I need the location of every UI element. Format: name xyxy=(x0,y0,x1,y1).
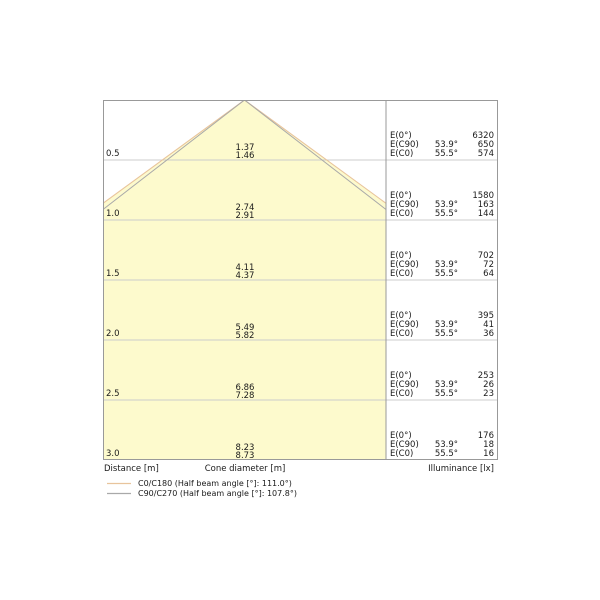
cone-diameter-c0-value: 2.91 xyxy=(195,213,295,221)
cone-diameter-c0-value: 8.73 xyxy=(195,453,295,461)
illuminance-row-ec0: E(C0)55.5°64 xyxy=(390,270,494,279)
cone-diameter-c0-value: 5.82 xyxy=(195,333,295,341)
ec0-angle: 55.5° xyxy=(434,270,458,279)
ec0-value: 64 xyxy=(458,270,494,279)
cone-diameter-values: 4.11 4.37 xyxy=(195,265,295,280)
ec0-value: 36 xyxy=(458,330,494,339)
cone-diameter-values: 2.74 2.91 xyxy=(195,205,295,220)
illuminance-block: E(0°)176 E(C90)53.9°18 E(C0)55.5°16 xyxy=(390,432,494,459)
ec0-value: 23 xyxy=(458,390,494,399)
ec0-label: E(C0) xyxy=(390,330,434,339)
ec0-angle: 55.5° xyxy=(434,210,458,219)
ec0-label: E(C0) xyxy=(390,270,434,279)
distance-label: 3.0 xyxy=(106,449,120,459)
distance-label: 0.5 xyxy=(106,149,120,159)
legend-item-c90: C90/C270 (Half beam angle [°]: 107.8°) xyxy=(106,488,297,498)
cone-diameter-values: 8.23 8.73 xyxy=(195,445,295,460)
distance-label: 2.0 xyxy=(106,329,120,339)
illuminance-row-ec0: E(C0)55.5°16 xyxy=(390,450,494,459)
light-cone-diagram: 0.5 1.37 1.46 E(0°)6320 E(C90)53.9°650 E… xyxy=(0,0,600,600)
ec0-label: E(C0) xyxy=(390,450,434,459)
ec0-label: E(C0) xyxy=(390,150,434,159)
distance-label: 1.0 xyxy=(106,209,120,219)
illuminance-block: E(0°)253 E(C90)53.9°26 E(C0)55.5°23 xyxy=(390,372,494,399)
legend-swatch-c90-icon xyxy=(106,489,132,498)
legend-label-c90: C90/C270 (Half beam angle [°]: 107.8°) xyxy=(138,489,297,498)
cone-diameter-c0-value: 4.37 xyxy=(195,273,295,281)
illuminance-row-ec0: E(C0)55.5°144 xyxy=(390,210,494,219)
cone-diameter-values: 1.37 1.46 xyxy=(195,145,295,160)
illuminance-row-ec0: E(C0)55.5°574 xyxy=(390,150,494,159)
ec0-value: 144 xyxy=(458,210,494,219)
distance-axis-label: Distance [m] xyxy=(104,464,159,474)
cone-diameter-c0-value: 1.46 xyxy=(195,153,295,161)
illuminance-row-ec0: E(C0)55.5°23 xyxy=(390,390,494,399)
cone-diameter-c0-value: 7.28 xyxy=(195,393,295,401)
ec0-angle: 55.5° xyxy=(434,390,458,399)
legend-swatch-c0-icon xyxy=(106,479,132,488)
ec0-value: 16 xyxy=(458,450,494,459)
ec0-value: 574 xyxy=(458,150,494,159)
ec0-angle: 55.5° xyxy=(434,150,458,159)
ec0-label: E(C0) xyxy=(390,210,434,219)
illuminance-row-ec0: E(C0)55.5°36 xyxy=(390,330,494,339)
cone-diameter-axis-label: Cone diameter [m] xyxy=(195,464,295,474)
distance-label: 1.5 xyxy=(106,269,120,279)
illuminance-block: E(0°)395 E(C90)53.9°41 E(C0)55.5°36 xyxy=(390,312,494,339)
legend-label-c0: C0/C180 (Half beam angle [°]: 111.0°) xyxy=(138,479,292,488)
illuminance-axis-label: Illuminance [lx] xyxy=(398,464,494,474)
illuminance-block: E(0°)6320 E(C90)53.9°650 E(C0)55.5°574 xyxy=(390,132,494,159)
ec0-angle: 55.5° xyxy=(434,450,458,459)
ec0-angle: 55.5° xyxy=(434,330,458,339)
cone-diameter-values: 5.49 5.82 xyxy=(195,325,295,340)
ec0-label: E(C0) xyxy=(390,390,434,399)
distance-label: 2.5 xyxy=(106,389,120,399)
cone-diameter-values: 6.86 7.28 xyxy=(195,385,295,400)
illuminance-block: E(0°)1580 E(C90)53.9°163 E(C0)55.5°144 xyxy=(390,192,494,219)
legend-item-c0: C0/C180 (Half beam angle [°]: 111.0°) xyxy=(106,478,292,488)
illuminance-block: E(0°)702 E(C90)53.9°72 E(C0)55.5°64 xyxy=(390,252,494,279)
